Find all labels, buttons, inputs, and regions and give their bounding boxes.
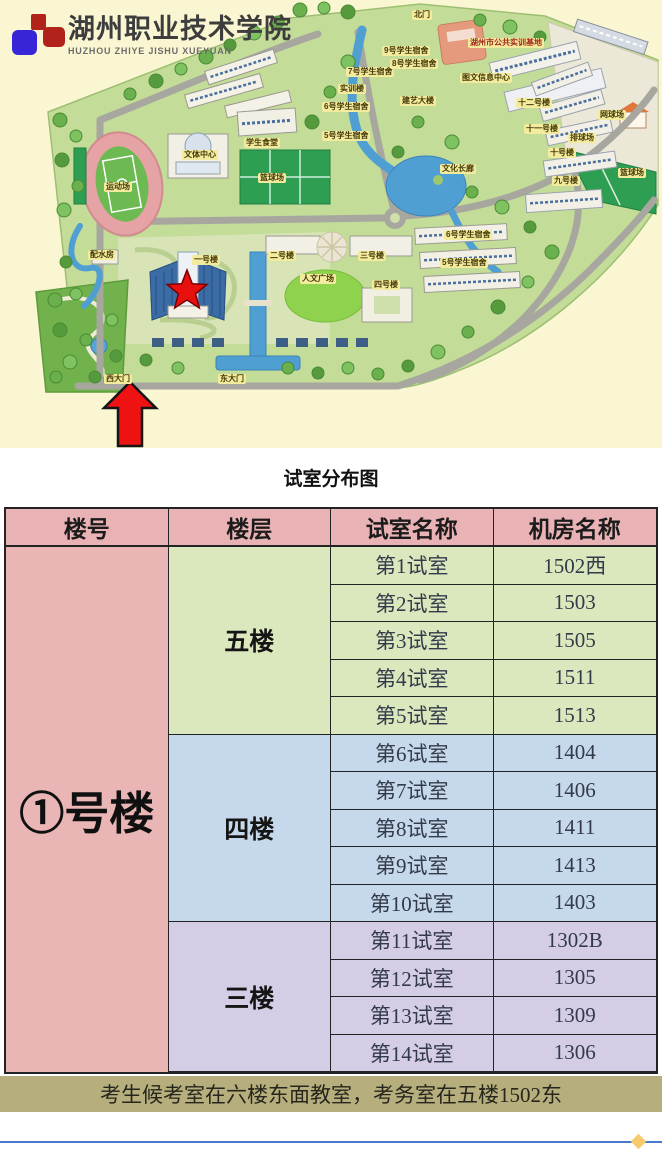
floor-cell-4: 四楼 <box>169 735 332 923</box>
lab-cell: 1305 <box>494 960 657 998</box>
lab-cell: 1403 <box>494 885 657 923</box>
room-cell: 第12试室 <box>331 960 494 998</box>
map-label: 九号楼 <box>552 176 580 186</box>
article-divider <box>0 1135 662 1149</box>
lab-cell: 1302B <box>494 922 657 960</box>
map-label: 西大门 <box>104 374 132 384</box>
col-header-room: 试室名称 <box>331 509 494 547</box>
lab-cell: 1404 <box>494 735 657 773</box>
room-cell: 第9试室 <box>331 847 494 885</box>
room-cell: 第4试室 <box>331 660 494 698</box>
lab-cell: 1511 <box>494 660 657 698</box>
map-label: 7号学生宿舍 <box>346 67 394 77</box>
map-label: 配水房 <box>88 250 116 260</box>
room-cell: 第11试室 <box>331 922 494 960</box>
map-label: 一号楼 <box>192 255 220 265</box>
lab-cell: 1309 <box>494 997 657 1035</box>
map-label: 十二号楼 <box>516 98 552 108</box>
map-label: 四号楼 <box>372 280 400 290</box>
lab-cell: 1502西 <box>494 547 657 585</box>
divider-diamond-icon <box>631 1134 647 1150</box>
room-cell: 第13试室 <box>331 997 494 1035</box>
room-cell: 第1试室 <box>331 547 494 585</box>
col-header-floor: 楼层 <box>169 509 332 547</box>
lab-cell: 1413 <box>494 847 657 885</box>
school-logo: 湖州职业技术学院 HUZHOU ZHIYE JISHU XUEYUAN <box>10 10 292 58</box>
map-label: 6号学生宿舍 <box>444 230 492 240</box>
floor-cell-5: 五楼 <box>169 547 332 735</box>
map-label: 图文信息中心 <box>460 73 512 83</box>
map-label: 9号学生宿舍 <box>382 46 430 56</box>
room-cell: 第3试室 <box>331 622 494 660</box>
room-cell: 第14试室 <box>331 1035 494 1073</box>
divider-line <box>0 1141 662 1143</box>
room-cell: 第5试室 <box>331 697 494 735</box>
map-label: 5号学生宿舍 <box>440 258 488 268</box>
room-cell: 第7试室 <box>331 772 494 810</box>
building-cell: ①号楼 <box>6 547 169 1072</box>
campus-map-illustration <box>0 0 662 448</box>
map-label: 人文广场 <box>300 274 336 284</box>
school-name: 湖州职业技术学院 <box>68 16 292 43</box>
exam-room-table: 楼号 楼层 试室名称 机房名称 ①号楼 五楼 第1试室 1502西 第2试室 1… <box>4 507 658 1074</box>
map-label: 5号学生宿舍 <box>322 131 370 141</box>
lab-cell: 1406 <box>494 772 657 810</box>
col-header-lab: 机房名称 <box>494 509 657 547</box>
lab-cell: 1505 <box>494 622 657 660</box>
map-label: 建艺大楼 <box>400 96 436 106</box>
room-cell: 第2试室 <box>331 585 494 623</box>
col-header-building: 楼号 <box>6 509 169 547</box>
exam-note: 考生候考室在六楼东面教室，考务室在五楼1502东 <box>0 1076 662 1112</box>
map-label: 湖州市公共实训基地 <box>468 38 544 48</box>
map-label: 学生食堂 <box>244 138 280 148</box>
room-cell: 第10试室 <box>331 885 494 923</box>
lab-cell: 1411 <box>494 810 657 848</box>
campus-map: 湖州职业技术学院 HUZHOU ZHIYE JISHU XUEYUAN 北门 湖… <box>0 0 662 448</box>
lab-cell: 1503 <box>494 585 657 623</box>
map-label: 北门 <box>412 10 432 20</box>
room-cell: 第6试室 <box>331 735 494 773</box>
map-label: 实训楼 <box>338 84 366 94</box>
room-cell: 第8试室 <box>331 810 494 848</box>
map-label: 网球场 <box>598 110 626 120</box>
map-label: 三号楼 <box>358 251 386 261</box>
map-label: 篮球场 <box>618 168 646 178</box>
map-label: 运动场 <box>104 182 132 192</box>
lab-cell: 1513 <box>494 697 657 735</box>
school-name-pinyin: HUZHOU ZHIYE JISHU XUEYUAN <box>68 46 292 56</box>
school-logo-icon <box>10 10 62 58</box>
map-label: 文化长廊 <box>440 164 476 174</box>
map-label: 东大门 <box>218 374 246 384</box>
map-label: 十号楼 <box>548 148 576 158</box>
map-label: 文体中心 <box>182 150 218 160</box>
map-label: 篮球场 <box>258 173 286 183</box>
map-label: 排球场 <box>568 133 596 143</box>
map-label: 十一号楼 <box>524 124 560 134</box>
figure-title: 试室分布图 <box>0 448 662 507</box>
map-label: 6号学生宿舍 <box>322 102 370 112</box>
lab-cell: 1306 <box>494 1035 657 1073</box>
map-label: 8号学生宿舍 <box>390 59 438 69</box>
floor-cell-3: 三楼 <box>169 922 332 1072</box>
map-label: 二号楼 <box>268 251 296 261</box>
